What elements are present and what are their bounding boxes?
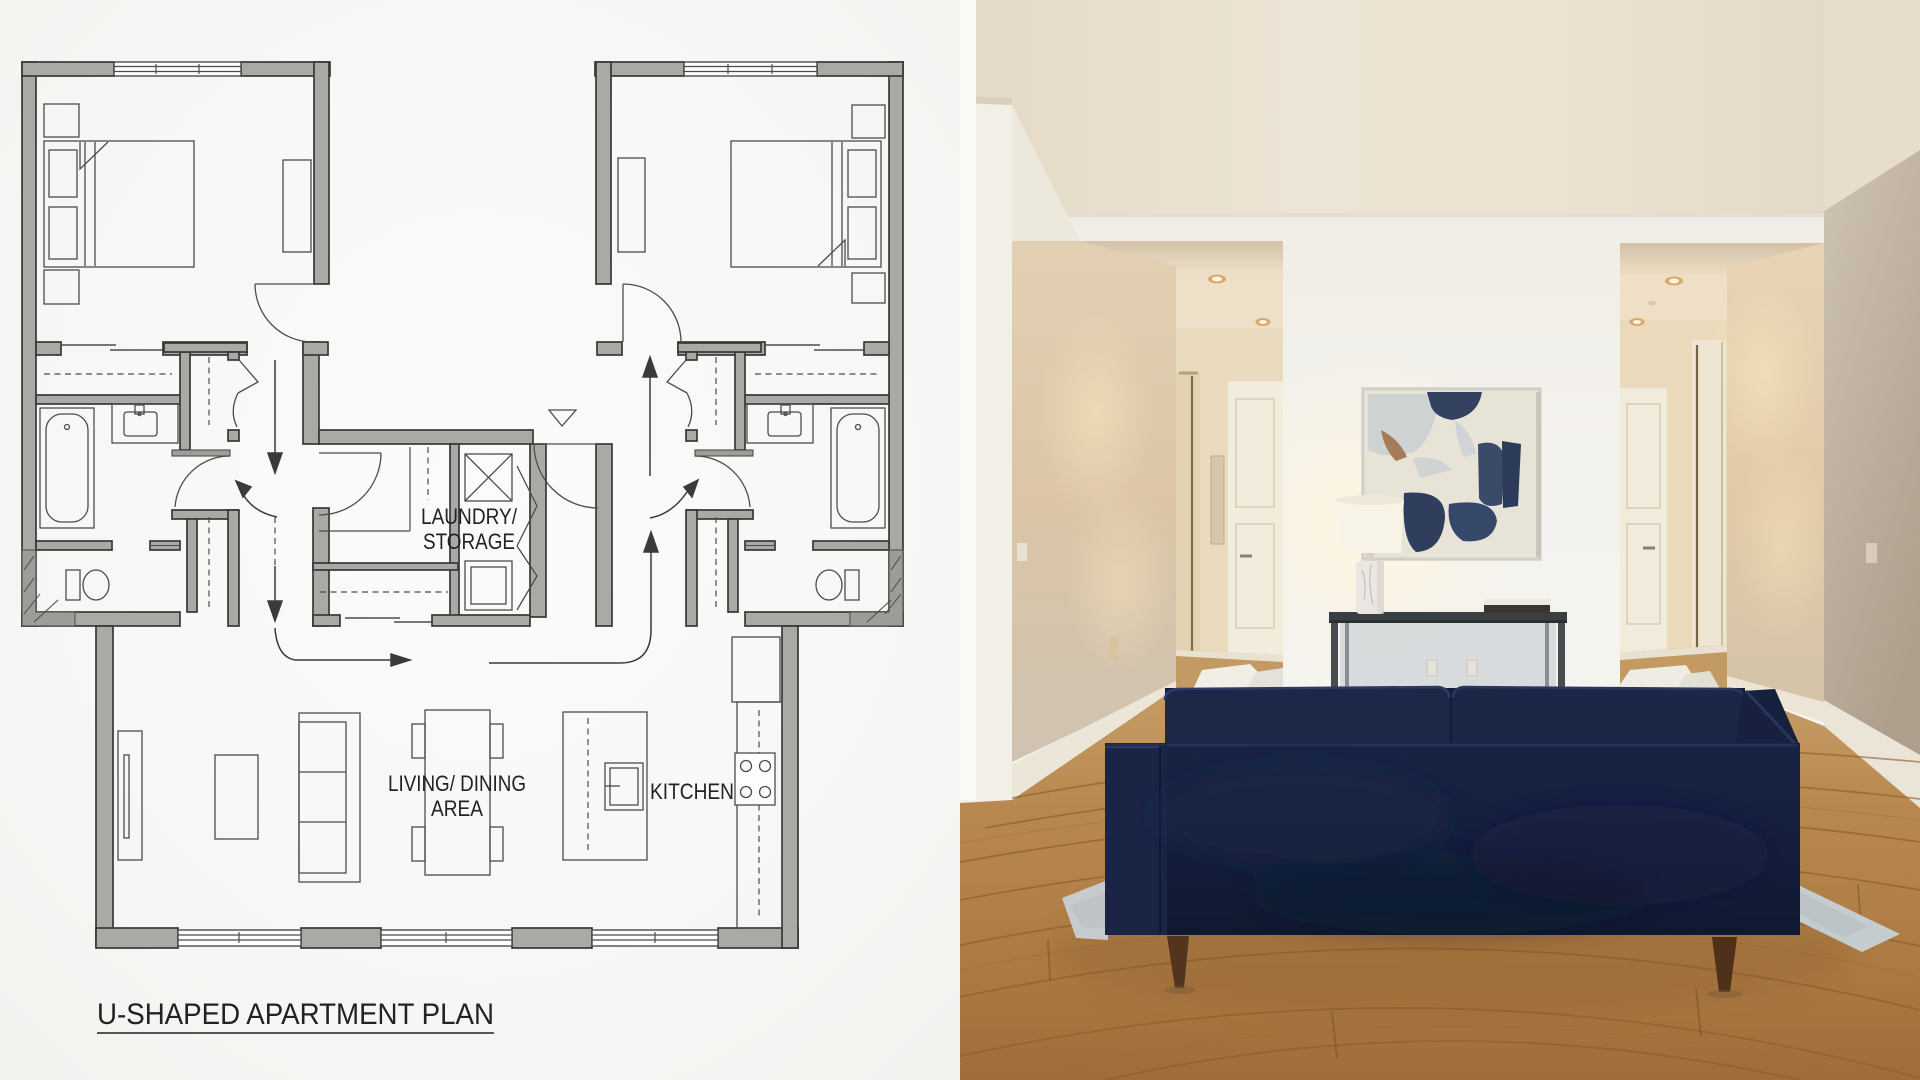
svg-text:STORAGE: STORAGE [423,529,515,554]
svg-text:LAUNDRY/: LAUNDRY/ [421,504,518,529]
svg-text:U-SHAPED APARTMENT PLAN: U-SHAPED APARTMENT PLAN [97,998,494,1031]
svg-text:KITCHEN: KITCHEN [650,779,734,804]
svg-text:AREA: AREA [431,796,483,821]
svg-text:LIVING/ DINING: LIVING/ DINING [388,771,526,796]
